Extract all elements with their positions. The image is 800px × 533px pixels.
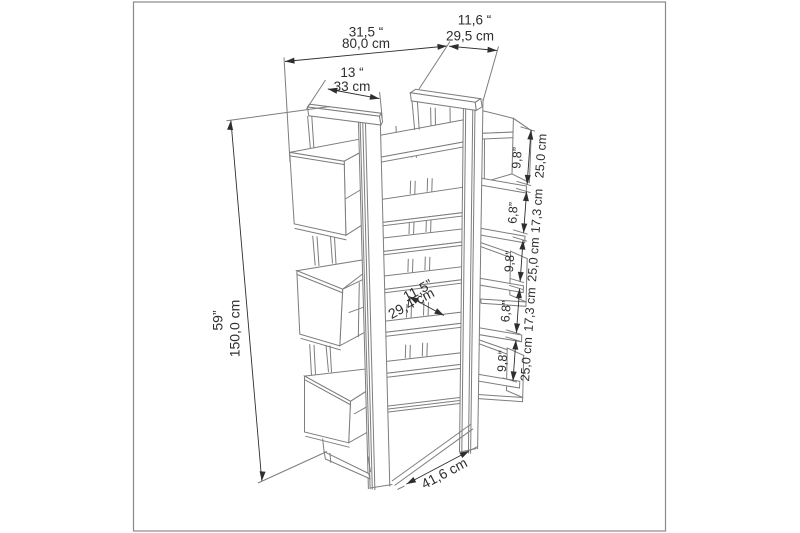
svg-text:9,8”: 9,8” [509,147,524,169]
svg-text:9,8”: 9,8” [495,350,510,372]
svg-text:9,8”: 9,8” [502,250,517,272]
svg-text:11,6 “: 11,6 “ [458,13,492,28]
svg-text:33 cm: 33 cm [334,79,371,94]
svg-text:13 “: 13 “ [340,65,363,80]
svg-text:29,5 cm: 29,5 cm [446,29,494,44]
svg-text:6,8”: 6,8” [498,300,513,322]
svg-text:6,8”: 6,8” [505,202,520,224]
svg-text:59”: 59” [210,310,226,331]
svg-text:80,0 cm: 80,0 cm [342,36,390,51]
svg-text:150,0 cm: 150,0 cm [227,300,243,358]
